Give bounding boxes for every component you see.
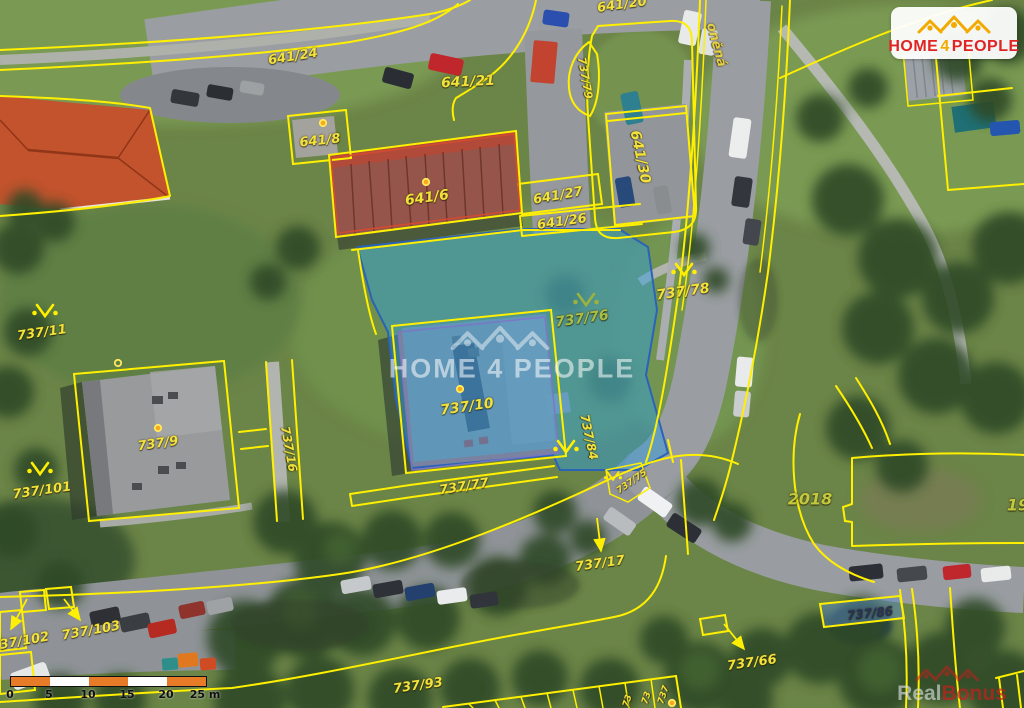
scale-bar-segment [11,677,50,686]
scale-tick-label: 0 [6,688,14,701]
small-shed [292,116,338,158]
scale-tick-label: 20 [158,688,173,701]
scale-bar-segment [167,677,206,686]
scale-bar-segment [128,677,167,686]
scale-tick-label: 25 m [190,688,221,701]
scale-bar-segment [50,677,89,686]
building-737-9 [60,366,230,520]
point-marker [155,425,161,431]
homes-crown-icon [917,12,991,38]
scale-tick-label: 15 [119,688,134,701]
scale-bar [10,676,207,687]
point-marker [669,700,675,706]
scale-tick-label: 10 [80,688,95,701]
scale-tick-label: 5 [45,688,53,701]
scale-bar-labels: 0510152025 m [10,688,240,702]
point-marker [457,386,463,392]
aerial-cadastral-map[interactable]: 641/20641/24641/21737/79641/8641/6641/27… [0,0,1024,708]
map-canvas [0,0,1024,708]
logo-wordmark: HOME4PEOPLE [888,39,1019,55]
point-marker [423,179,429,185]
scale-bar-segment [89,677,128,686]
home4people-logo: HOME4PEOPLE [891,7,1017,59]
point-marker [320,120,326,126]
